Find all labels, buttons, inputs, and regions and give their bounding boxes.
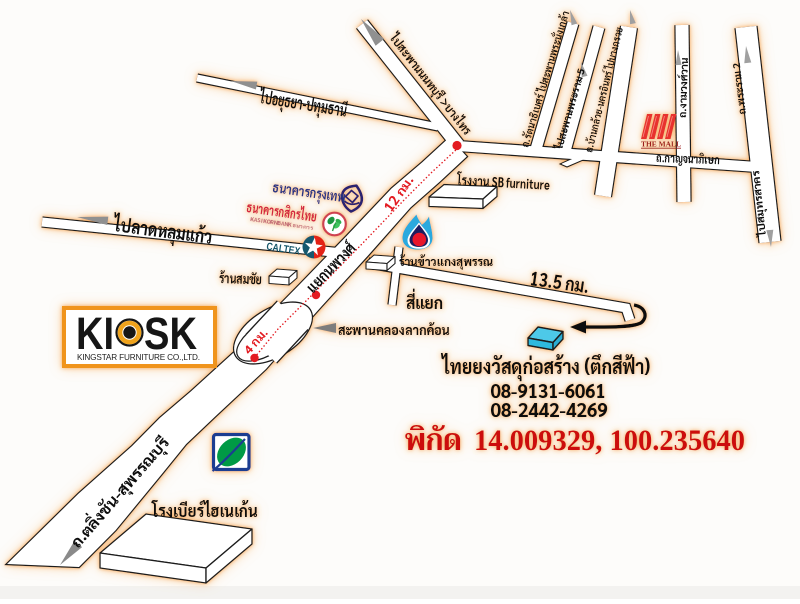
- svg-text:14.009329, 100.235640: 14.009329, 100.235640: [474, 424, 745, 457]
- svg-text:KINGSTAR FURNITURE CO.,LTD.: KINGSTAR FURNITURE CO.,LTD.: [77, 353, 200, 362]
- svg-text:KI: KI: [76, 308, 114, 359]
- svg-text:SK: SK: [144, 308, 197, 359]
- svg-text:THE MALL: THE MALL: [641, 140, 681, 149]
